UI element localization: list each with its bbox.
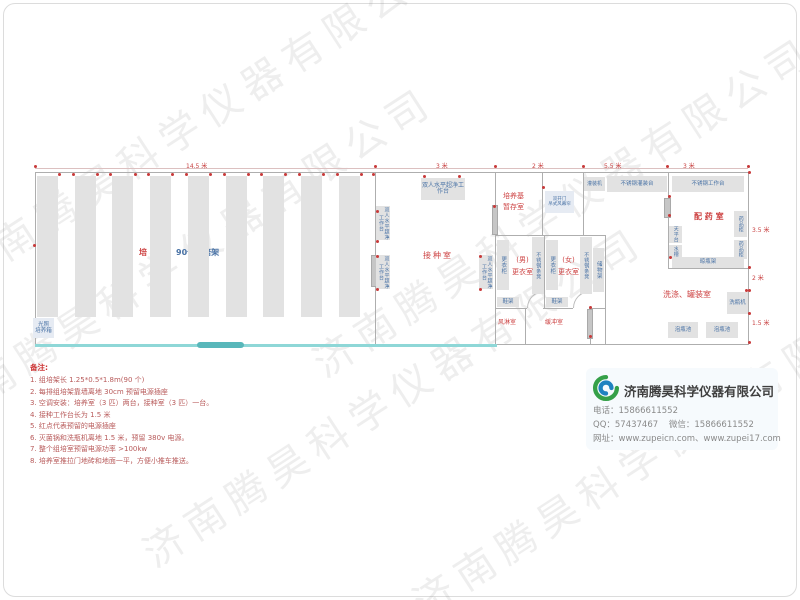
power-socket-dot xyxy=(336,173,339,176)
light-incubator-line2: 培养箱 xyxy=(35,328,52,334)
top-dimension-line xyxy=(35,168,748,169)
power-socket-dot xyxy=(372,173,375,176)
power-socket-dot xyxy=(376,210,379,213)
power-socket-dot xyxy=(96,173,99,176)
medium-storage-line1: 培养基 xyxy=(503,191,524,202)
power-socket-dot xyxy=(458,175,461,178)
power-socket-dot xyxy=(542,186,545,189)
locker-men: 更衣柜 xyxy=(497,240,509,290)
clean-bench-left-2: 双人水平超净工作台 xyxy=(376,255,390,289)
power-socket-dot xyxy=(209,173,212,176)
power-socket-dot xyxy=(423,175,426,178)
culture-rack-bar xyxy=(37,176,58,317)
note-item: 8. 培养室推拉门地砖和地面一平，方便小推车推送。 xyxy=(30,456,213,468)
power-socket-dot xyxy=(374,165,377,168)
sliding-rail xyxy=(35,344,497,347)
culture-rack-bar xyxy=(339,176,360,317)
web-urls: www.zupeicn.com、www.zupei17.com xyxy=(619,434,781,444)
shoe-rack-women: 鞋架 xyxy=(546,297,568,307)
wall-right xyxy=(748,172,749,345)
note-item: 5. 红点代表预留的电源插座 xyxy=(30,421,213,433)
power-socket-dot xyxy=(747,165,750,168)
shoe-rack-men: 鞋架 xyxy=(497,297,519,307)
wall-top xyxy=(35,172,748,173)
qq-value: 57437467 xyxy=(615,420,658,430)
power-socket-dot xyxy=(247,173,250,176)
soak-pool-1: 泡瓶池 xyxy=(668,322,698,338)
power-socket-dot xyxy=(376,255,379,258)
bottle-washer: 洗瓶机 xyxy=(727,292,748,314)
storage-rack: 储物架 xyxy=(593,248,604,292)
wall-changing-bottom-1 xyxy=(495,308,527,309)
balance-table: 天平台 xyxy=(669,226,682,243)
dim-culture-room: 14.5 米 xyxy=(186,161,207,170)
clean-bench-right: 双人水平超净工作台 xyxy=(479,255,493,289)
pharmacy-room-label: 配 药 室 xyxy=(694,211,724,222)
power-socket-dot xyxy=(185,173,188,176)
inoculation-room-label: 接种室 xyxy=(423,250,453,261)
power-socket-dot xyxy=(666,165,669,168)
power-socket-dot xyxy=(284,173,287,176)
women-line1: (女) xyxy=(558,254,579,266)
culture-rack-bar xyxy=(226,176,247,317)
filling-machine: 灌装机 xyxy=(584,177,605,191)
double-door-line2: 吊式风幕帘 xyxy=(548,202,571,208)
power-socket-dot xyxy=(479,255,482,258)
power-socket-dot xyxy=(582,165,585,168)
culture-rack-bar xyxy=(188,176,209,317)
power-socket-dot xyxy=(109,173,112,176)
note-item: 4. 接种工作台长为 1.5 米 xyxy=(30,410,213,422)
power-socket-dot xyxy=(134,173,137,176)
wall-airshower-buffer xyxy=(525,308,526,345)
notes-block: 备注: 1. 组培架长 1.25*0.5*1.8m(90 个) 2. 每排组培架… xyxy=(30,362,213,467)
power-socket-dot xyxy=(58,173,61,176)
company-phone-line: 电话：15866611552 xyxy=(593,404,678,416)
women-line2: 更衣室 xyxy=(558,266,579,278)
double-door-air-curtain: 双开门 吊式风幕帘 xyxy=(545,191,574,213)
wall-changing-bottom-2 xyxy=(543,308,573,309)
men-line2: 更衣室 xyxy=(512,266,533,278)
note-item: 2. 每排组培架靠墙离地 30cm 预留电源插座 xyxy=(30,387,213,399)
company-name: 济南腾昊科学仪器有限公司 xyxy=(624,381,774,400)
culture-rack-bar xyxy=(263,176,284,317)
wechat-value: 15866611552 xyxy=(694,420,754,430)
power-socket-dot xyxy=(479,288,482,291)
dim-pharmacy-room: 3 米 xyxy=(683,161,695,170)
power-socket-dot xyxy=(360,173,363,176)
work-table: 不锈钢工作台 xyxy=(672,176,744,192)
power-socket-dot xyxy=(668,195,671,198)
power-socket-dot xyxy=(748,171,751,174)
power-socket-dot xyxy=(748,341,751,344)
bottle-drying-rack: 晾瓶架 xyxy=(672,257,744,268)
clean-bench-top: 双人水平超净工作台 xyxy=(421,178,465,200)
wall-pharmacy-bottom xyxy=(668,268,748,269)
company-web-line: 网址：www.zupeicn.com、www.zupei17.com xyxy=(593,432,781,444)
note-item: 3. 空调安装：培养室（3 匹）两台，接种室（3 匹）一台。 xyxy=(30,398,213,410)
power-socket-dot xyxy=(668,214,671,217)
sliding-door-inoculation xyxy=(492,205,498,235)
ss-bench-women: 不锈钢条凳 xyxy=(580,237,592,294)
medium-storage-line2: 暂存室 xyxy=(503,202,524,213)
washing-room-label: 洗涤、罐装室 xyxy=(663,289,711,300)
wall-changing-right xyxy=(605,235,606,345)
power-socket-dot xyxy=(669,256,672,259)
dim-inoculation-room: 3 米 xyxy=(436,161,448,170)
ss-bench-men: 不锈钢条凳 xyxy=(532,237,544,294)
dim-right-2: 2 米 xyxy=(752,273,764,282)
phone-value: 15866611552 xyxy=(619,406,679,416)
qq-label: QQ： xyxy=(593,420,615,430)
company-qq-line: QQ：57437467 微信：15866611552 xyxy=(593,418,754,430)
power-socket-dot xyxy=(748,266,751,269)
dim-right-3: 1.5 米 xyxy=(752,318,769,327)
culture-rack-bar xyxy=(75,176,96,317)
power-socket-dot xyxy=(376,240,379,243)
culture-rack-bar xyxy=(150,176,171,317)
power-socket-dot xyxy=(171,173,174,176)
power-socket-dot xyxy=(322,173,325,176)
power-socket-dot xyxy=(376,288,379,291)
power-socket-dot xyxy=(589,306,592,309)
men-changing-label: (男) 更衣室 xyxy=(512,254,533,278)
power-socket-dot xyxy=(298,173,301,176)
note-item: 7. 整个组培室预留电源功率 >100kw xyxy=(30,444,213,456)
dim-filling-area: 5.5 米 xyxy=(604,161,621,170)
dim-storage-room: 2 米 xyxy=(532,161,544,170)
dim-right-1: 3.5 米 xyxy=(752,225,769,234)
wall-storage-right xyxy=(542,172,543,235)
men-line1: (男) xyxy=(512,254,533,266)
power-socket-dot xyxy=(34,165,37,168)
note-item: 6. 灭菌锅和洗瓶机离地 1.5 米，预留 380v 电源。 xyxy=(30,433,213,445)
culture-rack-bar xyxy=(301,176,322,317)
medium-storage-label: 培养基 暂存室 xyxy=(503,191,524,213)
power-socket-dot xyxy=(748,289,751,292)
wall-inoculation-storage xyxy=(495,172,496,344)
web-label: 网址： xyxy=(593,434,619,444)
buffer-room-label: 缓冲室 xyxy=(545,317,563,326)
wall-changing-top xyxy=(495,235,605,236)
floorplan-canvas: 济南腾昊科学仪器有限公司 济南腾昊科学仪器有限公司 济南腾昊科学仪器有限公司 济… xyxy=(0,0,800,600)
power-socket-dot xyxy=(748,312,751,315)
light-incubator: 光照 培养箱 xyxy=(33,318,54,338)
phone-label: 电话： xyxy=(593,406,619,416)
locker-women: 更衣柜 xyxy=(546,240,558,290)
power-socket-dot xyxy=(72,173,75,176)
air-shower-label: 风淋室 xyxy=(498,317,516,326)
note-item: 1. 组培架长 1.25*0.5*1.8m(90 个) xyxy=(30,375,213,387)
wechat-label: 微信： xyxy=(669,420,695,430)
notes-title: 备注: xyxy=(30,362,213,373)
company-block: 济南腾昊科学仪器有限公司 电话：15866611552 QQ：57437467 … xyxy=(586,368,778,450)
women-changing-label: (女) 更衣室 xyxy=(558,254,579,278)
company-logo-icon xyxy=(592,374,620,406)
sliding-door-handle xyxy=(197,342,244,348)
power-socket-dot xyxy=(260,173,263,176)
power-socket-dot xyxy=(223,173,226,176)
filling-table: 不锈钢灌装台 xyxy=(607,176,667,192)
power-socket-dot xyxy=(494,165,497,168)
power-socket-dot xyxy=(589,335,592,338)
wall-men-women xyxy=(544,235,545,308)
power-socket-dot xyxy=(33,244,36,247)
culture-rack-bar xyxy=(112,176,133,317)
medicine-cabinet-1: 药品柜 xyxy=(734,211,747,237)
power-socket-dot xyxy=(147,173,150,176)
power-socket-dot xyxy=(493,205,496,208)
soak-pool-2: 泡瓶池 xyxy=(706,322,738,338)
